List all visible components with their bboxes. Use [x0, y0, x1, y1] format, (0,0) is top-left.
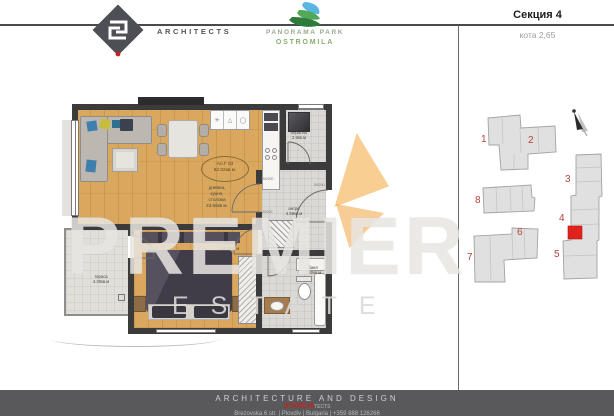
building-number: 6 [517, 227, 523, 238]
site-map: 1 2 3 4 5 6 7 8 [462, 98, 612, 300]
building-number: 5 [554, 249, 560, 260]
north-arrow-icon [572, 109, 588, 136]
door-swings [60, 90, 340, 345]
building-number: 7 [467, 252, 473, 263]
panorama-park-leaf-logo-icon [286, 1, 324, 27]
laundry-label: перално 2.9кв.м [282, 130, 316, 141]
bathroom-area: 4.50кв.м [300, 270, 326, 275]
watermark-arrow-shape [336, 198, 384, 248]
elevation-label: кота 2,65 [480, 30, 595, 40]
laundry-area: 2.9кв.м [282, 135, 316, 140]
door-dimension: 90/200 [314, 184, 324, 188]
living-room-label: дневна, кухня, столова 23.66кв м. [193, 185, 241, 209]
terrace-area: 4.30кв.м [82, 279, 120, 284]
project-subname: OSTROMILA [255, 39, 355, 46]
building-number: 3 [565, 174, 571, 185]
site-map-buildings [474, 115, 602, 282]
footer-brand-red: STARCHI [284, 403, 315, 410]
bathroom-label: баня 4.50кв.м [300, 265, 326, 276]
building-number: 8 [475, 195, 481, 206]
footer-tagline: ARCHITECTURE AND DESIGN [0, 394, 614, 403]
brochure-page: ARCHITECTS PANORAMA PARK OSTROMILA Секци… [0, 0, 614, 416]
hallway-area: 4.59кв.м [276, 211, 312, 216]
architects-label: ARCHITECTS [157, 27, 231, 36]
highlighted-apartment-unit [568, 226, 582, 239]
terrace-label: тераса 4.30кв.м [82, 274, 120, 285]
footer-brand: STARCHITECTS [0, 403, 614, 411]
door-dimension: 90/200 [262, 211, 272, 215]
footer-brand-gray: TECTS [314, 404, 330, 410]
door-dimension: 60/200 [263, 178, 273, 182]
bedroom-label: спалня 14.52кв.м [206, 241, 254, 252]
apartment-label: Ап.Г 03 62.02кв м. [201, 156, 249, 182]
building-number: 4 [559, 213, 565, 224]
vertical-divider [458, 25, 459, 390]
footer-bar: ARCHITECTURE AND DESIGN STARCHITECTS Bre… [0, 390, 614, 416]
living-area: 23.66кв м. [193, 203, 241, 209]
bedroom-area: 14.52кв.м [206, 246, 254, 251]
apartment-area: 62.02кв м. [202, 168, 248, 174]
project-name: PANORAMA PARK [255, 29, 355, 36]
architects-diamond-logo-icon [88, 2, 148, 58]
hallway-label: антре 4.59кв.м [276, 206, 312, 217]
building-number: 2 [528, 135, 534, 146]
floor-plan: ✳ △ ◯ [60, 90, 340, 345]
building-number: 1 [481, 134, 487, 145]
footer-address: Brezovska 6 str. | Plovdiv | Bulgaria | … [0, 411, 614, 416]
section-title: Секция 4 [480, 9, 595, 21]
